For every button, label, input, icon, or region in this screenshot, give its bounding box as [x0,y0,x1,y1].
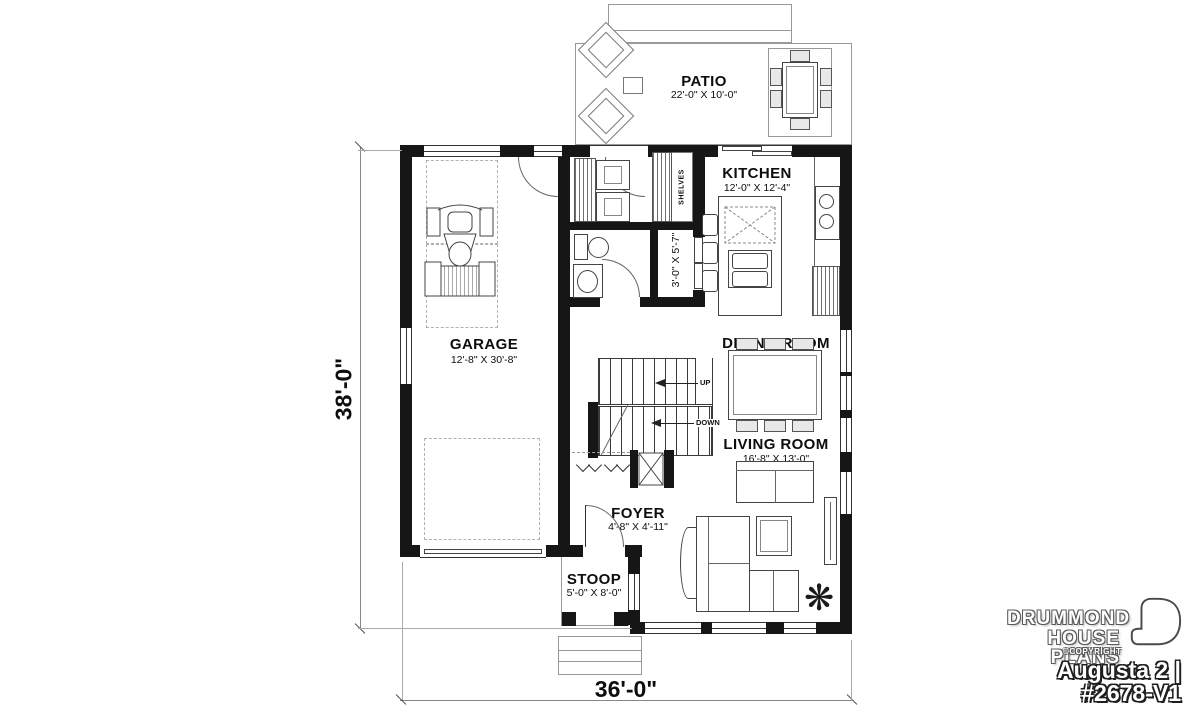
refrigerator [812,266,840,316]
understair-closet-x [638,452,664,486]
stairs-down-treads [598,406,712,456]
garage-tractor [424,200,496,304]
drummond-d-icon [1126,595,1184,649]
branding-block: DRUMMOND HOUSE PLANS ©COPYRIGHT Augusta … [985,595,1200,695]
dim-extension [358,628,632,629]
coat-hook-icon [616,458,630,472]
room-dims-patio: 22'-0" X 10'-0" [671,90,737,101]
garage-mudroom-door-arc [518,157,558,197]
stair-divider [598,404,712,405]
dim-extension [851,640,852,700]
powder-room-top-wall [570,222,693,230]
garage-storage-outline [424,438,540,540]
loveseat-cushion-line [775,470,776,503]
stoop-window [628,574,640,610]
brand-copyright: ©COPYRIGHT [1063,648,1120,656]
dining-chair [792,420,814,432]
mudroom-counter [574,158,596,222]
room-dims-stoop: 5'-0" X 8'-0" [567,588,622,599]
room-dims-garage: 12'-8" X 30'-8" [451,355,517,366]
patio-table-inner [786,66,814,114]
stoop-steps [558,636,642,675]
coat-hook-icon [588,458,602,472]
stoop-step-line [558,650,642,651]
dim-extension [402,562,403,700]
stairs-down-label: DOWN [695,419,721,427]
room-label-foyer: FOYER [611,506,665,521]
up-arrow-line [664,383,698,384]
patio-chair [790,50,810,62]
floor-plan: PATIO 22'-0" X 10'-0" GARAGE 12'-8" X 3 [0,0,1200,711]
patio-chair [820,68,832,86]
closet-dims: 3'-0" X 5'-7" [670,233,682,288]
sectional-chaise [749,570,799,612]
island-stool [702,270,718,292]
garage-window [424,145,500,157]
dining-chair [764,338,786,350]
living-front-window [645,622,701,634]
island-stool [702,214,718,236]
stoop-post [562,612,576,626]
media-cabinet-line [830,502,831,560]
dining-window [840,330,852,372]
foyer-wall-stub [625,545,642,557]
room-label-stoop: STOOP [567,572,621,587]
understair-closet-wall [664,450,674,488]
patio-chair [770,68,782,86]
stove-burner [819,214,834,229]
room-label-garage: GARAGE [450,337,518,352]
garage-side-window [400,328,412,384]
stove-burner [819,194,834,209]
sink-basin [732,253,768,269]
overall-depth-label: 38'-0" [331,358,358,420]
patio-chair [820,90,832,108]
plan-title: Augusta 2 | #2678-V1 [985,659,1181,705]
foyer-closet-rod [572,452,630,453]
garage-window [534,145,562,157]
powder-door-opening [600,297,640,307]
sliding-door-panel [752,151,792,156]
room-label-patio: PATIO [681,74,727,89]
patio-chair [770,90,782,108]
washer-inner [604,166,622,184]
down-arrow-head [651,419,661,427]
stoop-post [614,612,628,626]
patio-side-table [623,77,643,94]
stair-edge [712,358,713,456]
toilet-bowl [588,237,609,258]
garage-interior-wall [558,145,570,557]
dining-chair [792,338,814,350]
dining-chair [736,420,758,432]
powder-door-arc [602,259,640,297]
ottoman-inner [760,520,788,552]
sectional-sofa [696,516,750,612]
living-front-window [784,622,816,634]
understair-closet-wall [630,450,638,488]
patio-step-upper [608,4,792,31]
living-window [840,418,852,452]
dim-line-depth [360,147,361,629]
dishwasher-dashed [724,206,776,244]
pantry-shelves-hatch [652,152,672,222]
brand-name-line1: DRUMMOND [1007,609,1120,628]
stair-side-wall [588,402,598,458]
stairs-up-treads [598,358,696,405]
island-stool [702,242,718,264]
up-arrow-head [655,379,665,387]
patio-chair [790,118,810,130]
dryer-inner [604,198,622,216]
dining-window [840,376,852,410]
stairs-up-label: UP [699,379,711,387]
stoop-step-line [558,661,642,662]
plant-icon: ❋ [804,580,834,616]
dining-chair [736,338,758,350]
room-label-living: LIVING ROOM [723,437,828,452]
toilet-tank [574,234,588,260]
powder-sink [577,270,598,293]
patio-step-lower [608,30,792,43]
dim-extension [358,150,402,151]
overall-width-label: 36'-0" [595,676,657,703]
living-window [840,472,852,514]
sectional-cushion-line [708,563,750,564]
dining-chair [764,420,786,432]
shelves-label: SHELVES [679,169,686,205]
sectional-end-piece [680,527,697,599]
closet-left-wall [650,225,658,305]
down-arrow-line [660,423,694,424]
sectional-back-line [708,517,709,611]
sectional-cushion-line [773,571,774,611]
sink-basin [732,271,768,287]
room-label-kitchen: KITCHEN [722,166,791,181]
living-front-window [712,622,766,634]
room-dims-kitchen: 12'-0" X 12'-4" [724,183,790,194]
dining-table-inner [733,355,817,415]
garage-door-panel [424,549,542,554]
